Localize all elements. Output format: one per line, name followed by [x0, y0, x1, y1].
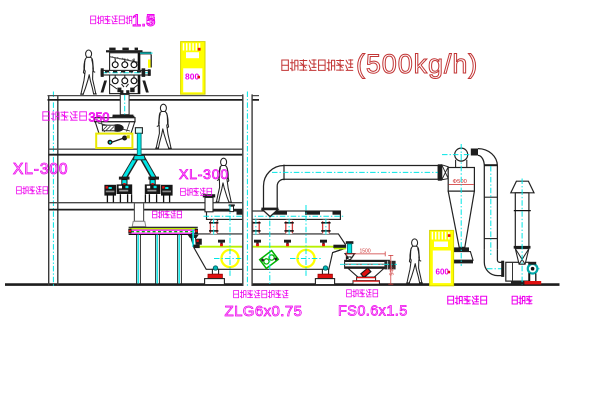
svg-text:XL-300: XL-300 [13, 161, 68, 178]
svg-text:FS0.6x1.5: FS0.6x1.5 [338, 304, 408, 320]
svg-text:600: 600 [436, 268, 450, 277]
svg-text:1500: 1500 [360, 249, 371, 255]
svg-text:Φ500: Φ500 [453, 179, 467, 185]
svg-text:(500kg/h): (500kg/h) [356, 49, 478, 79]
svg-text:ZLG6x0.75: ZLG6x0.75 [225, 303, 303, 320]
svg-text:350: 350 [89, 111, 110, 125]
svg-text:540: 540 [389, 267, 395, 276]
svg-text:800: 800 [185, 72, 199, 82]
svg-text:XL-300: XL-300 [179, 166, 229, 182]
